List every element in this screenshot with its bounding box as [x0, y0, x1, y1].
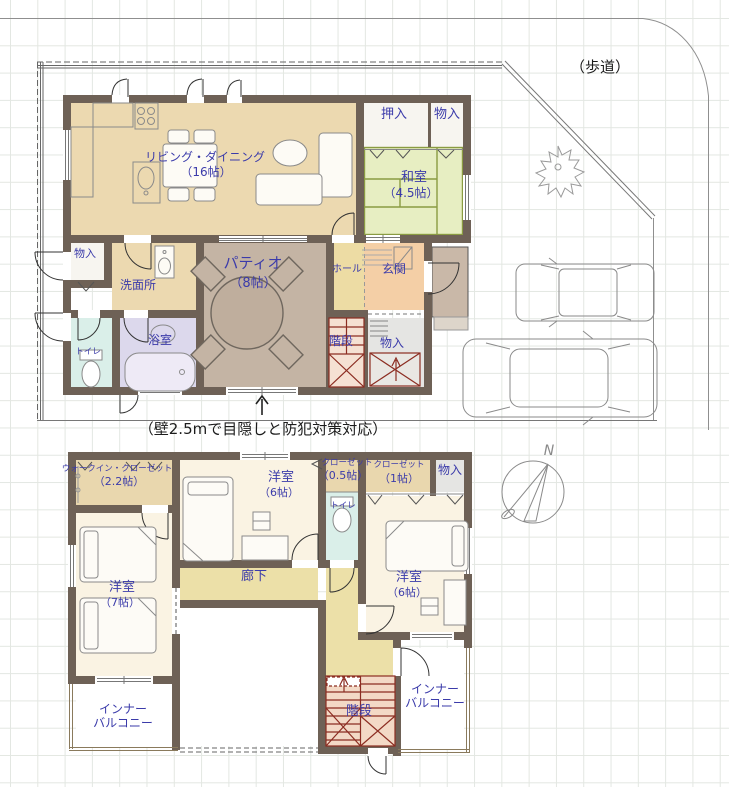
- label-toilet-2f: トイレ: [330, 501, 356, 511]
- stairs-1f: [329, 318, 364, 387]
- label-storage-left: 物入: [74, 247, 96, 260]
- label-bedroom-east: 洋室: [396, 570, 422, 586]
- entrance-porch: [432, 247, 468, 317]
- label-washitsu: 和室: [401, 170, 427, 186]
- label-living-dining: リビング・ダイニング: [145, 150, 265, 164]
- label-closet: クローゼット: [373, 460, 424, 470]
- label-patio: パティオ: [223, 254, 282, 272]
- washstand-icon: [155, 246, 174, 278]
- label-washroom: 洗面所: [120, 278, 156, 292]
- corridor-stair-landing: [326, 640, 393, 676]
- bed-icon-east: [386, 521, 468, 571]
- label-hall: ホール: [332, 264, 362, 276]
- porch-step: [434, 317, 468, 330]
- label-balcony-right: インナーバルコニー: [405, 682, 465, 711]
- floor-plan-drawing: [0, 0, 729, 787]
- label-washitsu-size: （4.5帖）: [383, 186, 438, 200]
- label-bathroom: 浴室: [148, 333, 172, 347]
- label-storage-2f: 物入: [438, 463, 462, 477]
- label-bedroom-north: 洋室: [268, 470, 294, 486]
- label-patio-size: （8帖）: [229, 276, 276, 292]
- label-toilet-1f: トイレ: [75, 347, 101, 357]
- label-closet-small-size: （0.5帖）: [318, 469, 369, 482]
- label-living-dining-size: （16帖）: [180, 165, 231, 179]
- floor1-rooms: [71, 103, 468, 387]
- label-wic-size: （2.2帖）: [94, 475, 145, 488]
- label-sidewalk: （歩道）: [570, 58, 630, 76]
- room-hall: [334, 243, 364, 310]
- balcony-right-line1: インナー: [411, 682, 459, 696]
- balcony-left-line1: インナー: [99, 702, 147, 716]
- void-area: [180, 608, 318, 746]
- balcony-right-line2: バルコニー: [405, 696, 465, 710]
- corridor-v: [326, 568, 358, 640]
- label-bedroom-east-size: （6帖）: [387, 586, 427, 599]
- bed-icon-north: [183, 477, 233, 561]
- label-stairs-1f: 階段: [329, 334, 353, 348]
- label-storage-stairs: 物入: [380, 336, 404, 350]
- car-icon-top: [516, 258, 654, 327]
- label-bedroom-west-size: （7帖）: [100, 596, 140, 609]
- label-bedroom-north-size: （6帖）: [259, 486, 299, 499]
- balcony-left-line2: バルコニー: [93, 716, 153, 730]
- compass-icon: [500, 461, 564, 523]
- label-wall-note: （壁2.5mで目隠しと防犯対策対応）: [139, 420, 387, 438]
- label-wic: ウォークイン・クローゼット: [62, 464, 173, 474]
- car-icon-bottom: [463, 331, 657, 425]
- label-closet-size: （1帖）: [379, 472, 419, 485]
- label-north: N: [544, 443, 554, 460]
- floor-plan-canvas: リビング・ダイニング （16帖） 押入 物入 和室 （4.5帖） 物入 洗面所 …: [0, 0, 729, 787]
- arrow-up-icon: [256, 396, 268, 415]
- label-stairs-2f: 階段: [346, 704, 372, 720]
- label-entrance: 玄関: [382, 262, 406, 276]
- label-closet-small: クローゼット: [321, 458, 372, 468]
- label-storage-top: 物入: [434, 107, 460, 123]
- label-oshiire: 押入: [381, 107, 407, 123]
- room-washroom: [112, 243, 196, 310]
- label-corridor: 廊下: [241, 569, 267, 585]
- bed-icon-west-1: [80, 527, 156, 582]
- tree-icon: [536, 146, 584, 197]
- label-balcony-left: インナーバルコニー: [93, 702, 153, 731]
- label-bedroom-west: 洋室: [109, 580, 135, 596]
